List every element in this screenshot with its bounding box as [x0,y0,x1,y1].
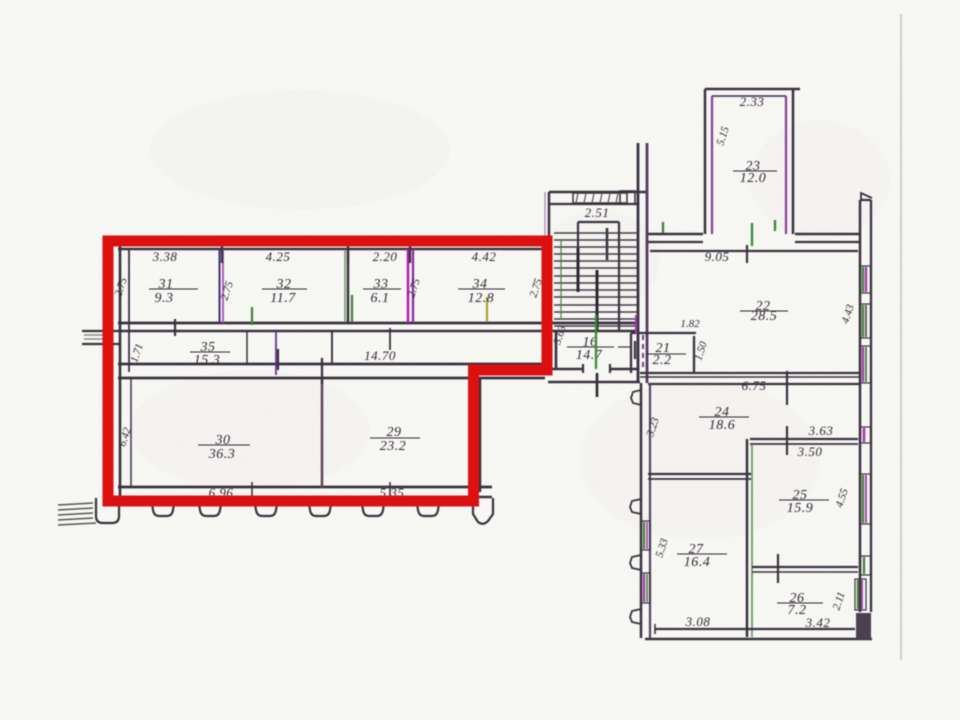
svg-text:9.05: 9.05 [705,249,730,264]
svg-text:12.0: 12.0 [740,171,767,186]
svg-text:4.42: 4.42 [472,249,497,264]
svg-text:2.2: 2.2 [653,353,672,368]
svg-text:2.51: 2.51 [585,205,610,220]
svg-text:12.8: 12.8 [468,291,495,306]
svg-text:6.75: 6.75 [742,378,767,393]
svg-text:34: 34 [472,277,488,292]
svg-text:15.3: 15.3 [194,353,221,368]
svg-text:3.08: 3.08 [685,614,711,629]
svg-text:3.63: 3.63 [808,423,834,438]
svg-text:14.70: 14.70 [364,348,396,363]
svg-text:1.82: 1.82 [680,318,700,330]
svg-text:6.1: 6.1 [371,291,390,306]
svg-text:32: 32 [276,277,292,292]
svg-text:16.4: 16.4 [684,555,711,570]
svg-text:2.20: 2.20 [373,249,398,264]
svg-text:36.3: 36.3 [208,447,236,462]
svg-text:9.3: 9.3 [155,291,174,306]
svg-text:33: 33 [373,277,389,292]
svg-text:3.42: 3.42 [805,615,831,630]
svg-text:30: 30 [215,433,231,448]
svg-text:11.7: 11.7 [270,291,296,306]
svg-text:7.2: 7.2 [788,603,807,618]
svg-text:14.7: 14.7 [576,348,603,363]
svg-text:28.5: 28.5 [751,309,778,324]
svg-text:3.38: 3.38 [152,249,178,264]
svg-text:23.2: 23.2 [380,439,407,454]
svg-text:4.25: 4.25 [266,249,291,264]
svg-text:2.33: 2.33 [740,94,765,109]
svg-text:15.9: 15.9 [787,501,814,516]
svg-text:3.50: 3.50 [797,444,823,459]
svg-text:18.6: 18.6 [709,418,736,433]
svg-text:31: 31 [158,277,174,292]
